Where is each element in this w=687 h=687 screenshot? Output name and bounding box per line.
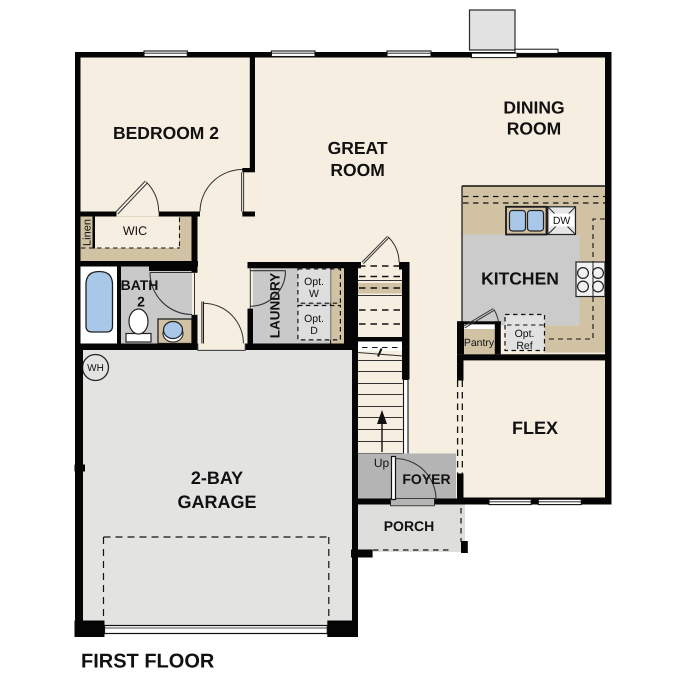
- svg-text:ROOM: ROOM: [507, 119, 561, 139]
- svg-text:W: W: [309, 288, 319, 300]
- svg-text:GARAGE: GARAGE: [177, 492, 256, 512]
- svg-text:FLEX: FLEX: [512, 418, 558, 438]
- svg-text:DW: DW: [553, 215, 571, 227]
- svg-text:ROOM: ROOM: [330, 160, 384, 180]
- svg-text:2: 2: [137, 293, 145, 309]
- svg-text:D: D: [310, 325, 318, 337]
- svg-text:LAUNDRY: LAUNDRY: [268, 273, 283, 339]
- svg-text:2-BAY: 2-BAY: [191, 468, 243, 488]
- svg-text:PORCH: PORCH: [384, 518, 435, 534]
- svg-text:Opt.: Opt.: [304, 313, 324, 325]
- svg-text:Up: Up: [374, 456, 390, 470]
- svg-text:BEDROOM 2: BEDROOM 2: [113, 123, 219, 143]
- svg-text:KITCHEN: KITCHEN: [481, 269, 559, 289]
- svg-text:BATH: BATH: [121, 277, 159, 293]
- svg-text:DINING: DINING: [503, 98, 564, 118]
- svg-text:WH: WH: [87, 363, 104, 374]
- svg-text:Opt.: Opt.: [515, 328, 535, 340]
- svg-text:GREAT: GREAT: [328, 138, 388, 158]
- svg-text:WIC: WIC: [123, 224, 147, 238]
- svg-text:FIRST FLOOR: FIRST FLOOR: [81, 651, 215, 673]
- svg-text:FOYER: FOYER: [402, 471, 450, 487]
- svg-text:Ref: Ref: [516, 340, 532, 352]
- svg-text:Opt.: Opt.: [304, 276, 324, 288]
- svg-text:Pantry: Pantry: [464, 337, 495, 349]
- svg-text:Linen: Linen: [82, 219, 94, 246]
